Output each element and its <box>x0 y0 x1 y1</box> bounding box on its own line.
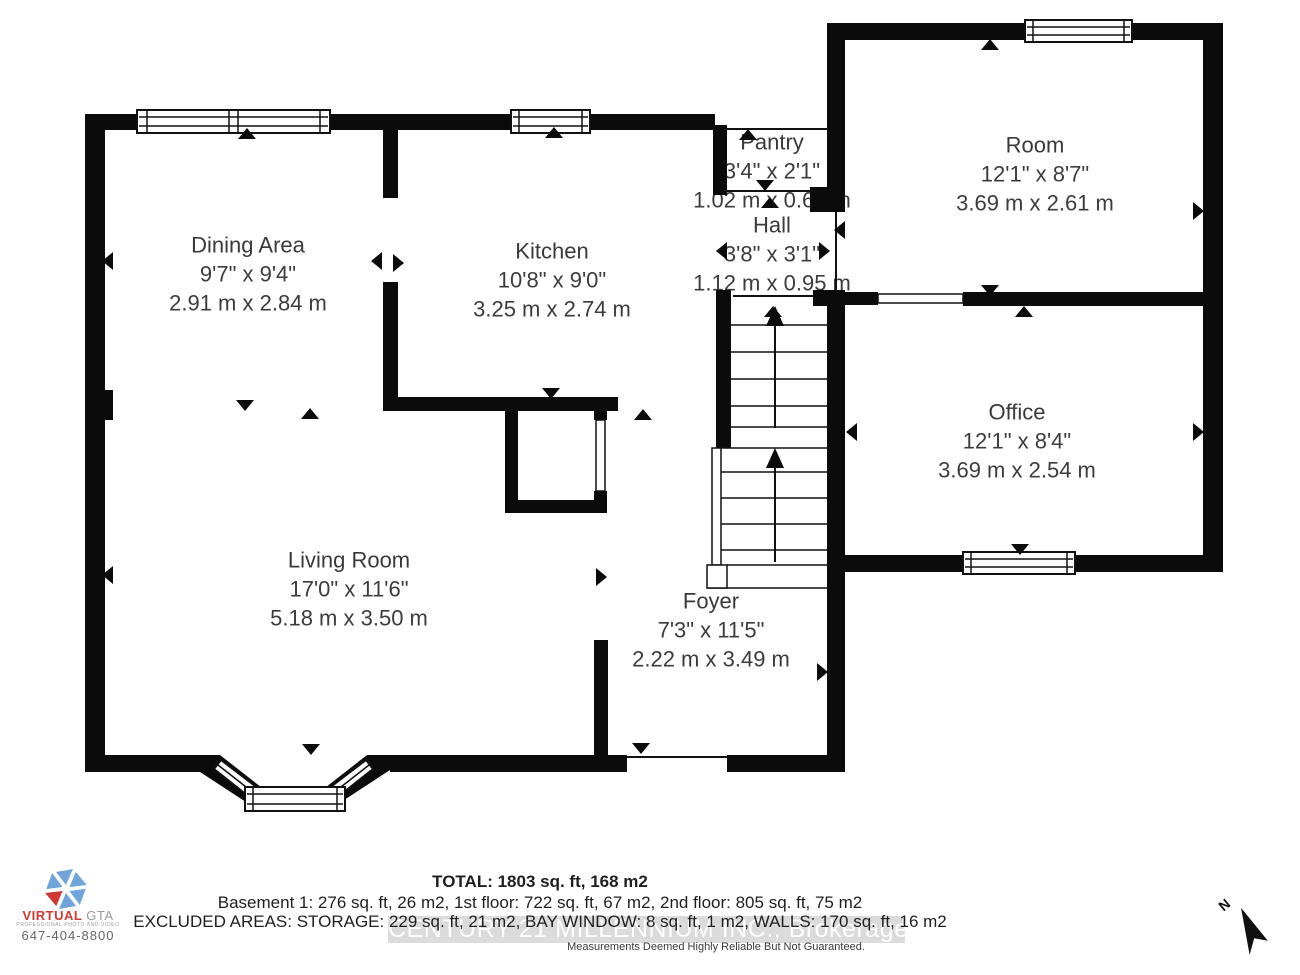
door-markers <box>102 39 1204 755</box>
logo-brand: VIRTUAL GTA <box>23 908 114 923</box>
floor-areas-text: Basement 1: 276 sq. ft, 26 m2, 1st floor… <box>218 893 862 913</box>
disclaimer-text: Measurements Deemed Highly Reliable But … <box>567 941 865 953</box>
north-arrow-icon: N <box>1214 886 1270 959</box>
logo-brand-secondary: GTA <box>86 908 113 923</box>
aperture-icon <box>44 869 89 909</box>
openings-layer <box>596 129 963 757</box>
floor-plan-page: Dining Area 9'7" x 9'4" 2.91 m x 2.84 m … <box>0 0 1300 975</box>
total-area-text: TOTAL: 1803 sq. ft, 168 m2 <box>432 872 648 892</box>
logo-phone: 647-404-8800 <box>22 928 115 943</box>
walls-layer <box>85 23 1223 772</box>
floor-plan-drawing: N <box>0 0 1300 975</box>
excluded-areas-text: EXCLUDED AREAS: STORAGE: 229 sq. ft, 21 … <box>133 912 946 932</box>
bay-window <box>197 755 390 811</box>
north-label: N <box>1215 895 1233 914</box>
logo-brand-primary: VIRTUAL <box>23 908 83 923</box>
